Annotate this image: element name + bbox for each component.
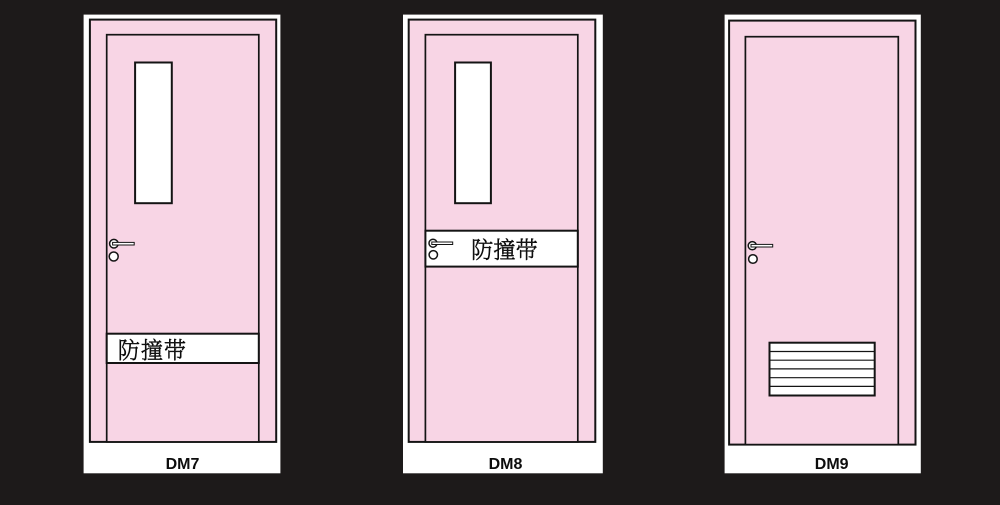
svg-text:DM9: DM9 [815, 456, 849, 473]
svg-text:DM7: DM7 [166, 456, 200, 473]
svg-text:DM8: DM8 [489, 456, 523, 473]
